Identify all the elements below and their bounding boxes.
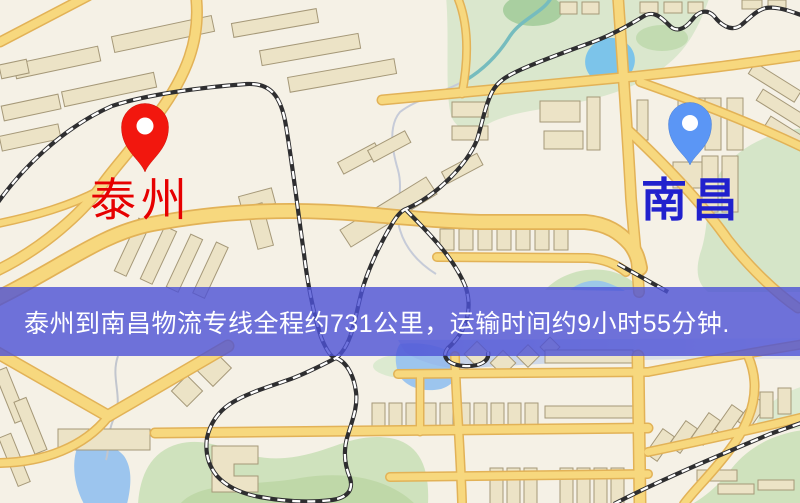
destination-pin-hole: [682, 115, 698, 131]
route-info-text: 泰州到南昌物流专线全程约731公里，运输时间约9小时55分钟.: [0, 304, 730, 340]
origin-city-label: 泰州: [90, 176, 192, 224]
destination-city-label: 南昌: [641, 176, 743, 224]
road-network: [0, 0, 800, 503]
route-info-banner: 泰州到南昌物流专线全程约731公里，运输时间约9小时55分钟.: [0, 287, 800, 356]
map-canvas: [0, 0, 800, 503]
origin-pin-shape: [122, 103, 169, 172]
origin-pin-hole: [137, 118, 154, 135]
map-screenshot: 泰州 南昌 泰州到南昌物流专线全程约731公里，运输时间约9小时55分钟.: [0, 0, 800, 503]
origin-pin: [122, 103, 169, 172]
